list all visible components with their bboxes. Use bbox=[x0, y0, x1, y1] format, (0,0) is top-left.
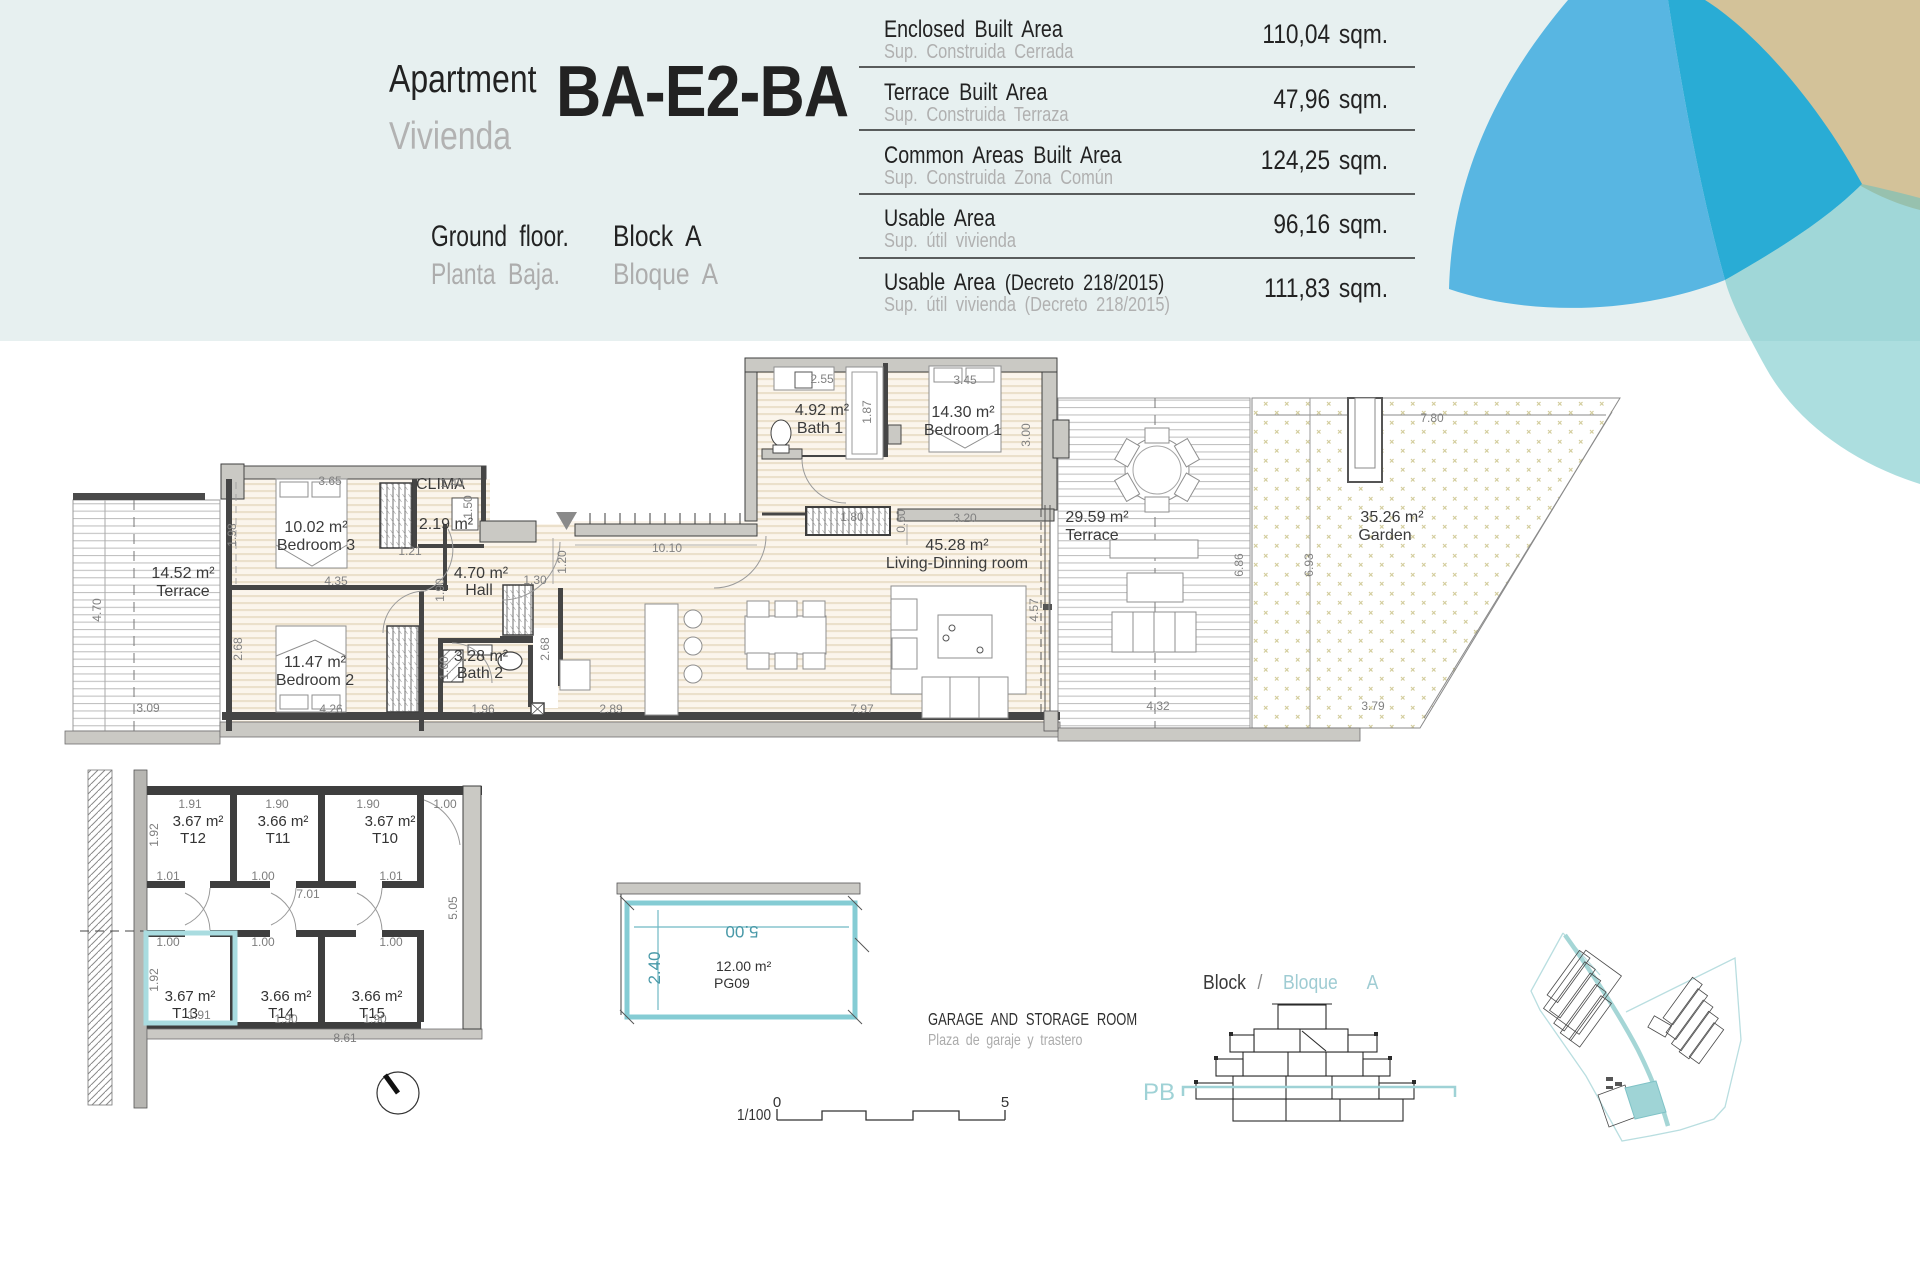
svg-text:PG09: PG09 bbox=[714, 975, 750, 991]
svg-text:1.00: 1.00 bbox=[433, 797, 457, 811]
svg-text:2.68: 2.68 bbox=[538, 637, 552, 661]
svg-text:T11: T11 bbox=[266, 830, 291, 847]
svg-text:5: 5 bbox=[1001, 1094, 1009, 1111]
svg-text:6.93: 6.93 bbox=[1302, 553, 1316, 577]
svg-text:Ground floor.: Ground floor. bbox=[431, 219, 569, 253]
svg-text:2.40: 2.40 bbox=[645, 951, 664, 984]
svg-text:3.66 m²: 3.66 m² bbox=[352, 988, 403, 1005]
svg-text:PB: PB bbox=[1143, 1079, 1175, 1106]
svg-text:T12: T12 bbox=[180, 830, 206, 847]
svg-text:Bedroom 1: Bedroom 1 bbox=[924, 422, 1002, 439]
svg-text:Garden: Garden bbox=[1358, 527, 1411, 544]
svg-text:Common Areas Built Area: Common Areas Built Area bbox=[884, 141, 1122, 168]
svg-text:1.92: 1.92 bbox=[147, 968, 161, 992]
svg-text:1.91: 1.91 bbox=[178, 797, 202, 811]
svg-text:14.30 m²: 14.30 m² bbox=[931, 404, 995, 421]
svg-text:1.91: 1.91 bbox=[187, 1008, 211, 1022]
svg-text:3.66 m²: 3.66 m² bbox=[261, 988, 312, 1005]
svg-text:47,96 sqm.: 47,96 sqm. bbox=[1273, 84, 1388, 114]
svg-text:1.90: 1.90 bbox=[363, 1012, 387, 1026]
svg-text:Terrace: Terrace bbox=[156, 583, 209, 600]
svg-text:1.00: 1.00 bbox=[156, 935, 180, 949]
svg-text:3.66 m²: 3.66 m² bbox=[258, 813, 309, 830]
svg-text:11.47 m²: 11.47 m² bbox=[284, 654, 347, 671]
svg-text:1.01: 1.01 bbox=[156, 869, 180, 883]
svg-text:3.65: 3.65 bbox=[318, 474, 342, 488]
svg-text:Planta Baja.: Planta Baja. bbox=[431, 257, 560, 291]
svg-text:Living-Dinning room: Living-Dinning room bbox=[886, 555, 1028, 572]
svg-text:3.67 m²: 3.67 m² bbox=[165, 988, 216, 1005]
svg-text:1.20: 1.20 bbox=[555, 550, 569, 574]
svg-text:Enclosed Built Area: Enclosed Built Area bbox=[884, 15, 1064, 42]
svg-text:Usable Area (Decreto 218/2015): Usable Area (Decreto 218/2015) bbox=[884, 268, 1164, 295]
svg-text:4.32: 4.32 bbox=[1146, 699, 1170, 713]
svg-text:Usable Area: Usable Area bbox=[884, 204, 996, 231]
svg-text:3.67 m²: 3.67 m² bbox=[173, 813, 224, 830]
svg-text:Sup. Construida Zona Común: Sup. Construida Zona Común bbox=[884, 165, 1113, 188]
svg-text:1.00: 1.00 bbox=[251, 869, 275, 883]
svg-text:Bedroom 2: Bedroom 2 bbox=[276, 672, 354, 689]
svg-text:1.30: 1.30 bbox=[523, 573, 547, 587]
svg-text:1.40: 1.40 bbox=[440, 476, 464, 490]
svg-text:BA-E2-BA: BA-E2-BA bbox=[556, 52, 848, 132]
svg-text:1/100: 1/100 bbox=[737, 1107, 771, 1124]
svg-text:29.59 m²: 29.59 m² bbox=[1065, 509, 1129, 526]
svg-text:2.55: 2.55 bbox=[810, 372, 834, 386]
svg-text:1.90: 1.90 bbox=[265, 797, 289, 811]
svg-text:Apartment: Apartment bbox=[389, 57, 537, 101]
svg-text:2.68: 2.68 bbox=[231, 637, 245, 661]
svg-text:7.80: 7.80 bbox=[1420, 411, 1444, 425]
svg-text:4.35: 4.35 bbox=[324, 574, 348, 588]
svg-text:8.61: 8.61 bbox=[333, 1031, 357, 1045]
svg-text:1.98: 1.98 bbox=[225, 523, 239, 547]
svg-text:Vivienda: Vivienda bbox=[389, 114, 511, 158]
svg-text:Bloque A: Bloque A bbox=[613, 257, 719, 291]
svg-text:3.79: 3.79 bbox=[1361, 699, 1385, 713]
svg-text:Terrace: Terrace bbox=[1065, 527, 1118, 544]
svg-text:4.26: 4.26 bbox=[319, 702, 343, 716]
svg-text:Hall: Hall bbox=[465, 582, 493, 599]
svg-text:1.01: 1.01 bbox=[379, 869, 403, 883]
svg-text:5.00: 5.00 bbox=[725, 922, 758, 941]
svg-text:110,04 sqm.: 110,04 sqm. bbox=[1262, 19, 1388, 49]
svg-text:1.80: 1.80 bbox=[840, 510, 864, 524]
svg-text:1.90: 1.90 bbox=[356, 797, 380, 811]
svg-text:1.92: 1.92 bbox=[147, 823, 161, 847]
svg-text:0.60: 0.60 bbox=[894, 509, 908, 533]
svg-text:Sup. Construida Terraza: Sup. Construida Terraza bbox=[884, 102, 1069, 125]
svg-text:124,25 sqm.: 124,25 sqm. bbox=[1261, 145, 1388, 175]
svg-text:4.92 m²: 4.92 m² bbox=[795, 402, 850, 419]
svg-text:4.70: 4.70 bbox=[90, 598, 104, 622]
svg-text:3.09: 3.09 bbox=[136, 701, 160, 715]
svg-text:3.00: 3.00 bbox=[1019, 423, 1033, 447]
svg-text:10.10: 10.10 bbox=[652, 541, 682, 555]
svg-text:2.89: 2.89 bbox=[599, 702, 623, 716]
svg-text:3.20: 3.20 bbox=[953, 511, 977, 525]
svg-text:111,83 sqm.: 111,83 sqm. bbox=[1264, 273, 1388, 303]
svg-text:Sup. útil vivienda: Sup. útil vivienda bbox=[884, 228, 1017, 251]
svg-text:Plaza de garaje y trastero: Plaza de garaje y trastero bbox=[928, 1032, 1083, 1050]
svg-text:Sup. Construida Cerrada: Sup. Construida Cerrada bbox=[884, 39, 1074, 62]
svg-text:Bath 2: Bath 2 bbox=[457, 665, 503, 682]
svg-text:45.28 m²: 45.28 m² bbox=[925, 537, 989, 554]
svg-text:12.00 m²: 12.00 m² bbox=[716, 958, 772, 974]
svg-text:1.00: 1.00 bbox=[251, 935, 275, 949]
svg-text:0: 0 bbox=[773, 1094, 781, 1111]
svg-text:1.90: 1.90 bbox=[433, 578, 447, 602]
svg-text:14.52 m²: 14.52 m² bbox=[151, 565, 215, 582]
svg-text:1.96: 1.96 bbox=[471, 702, 495, 716]
svg-text:Bath 1: Bath 1 bbox=[797, 420, 843, 437]
svg-text:Block / Bloque A: Block / Bloque A bbox=[1203, 971, 1379, 993]
svg-text:1.87: 1.87 bbox=[860, 400, 874, 424]
svg-text:GARAGE AND STORAGE ROOM: GARAGE AND STORAGE ROOM bbox=[928, 1010, 1137, 1030]
svg-text:3.45: 3.45 bbox=[953, 373, 977, 387]
svg-text:1.21: 1.21 bbox=[398, 544, 422, 558]
svg-text:4.57: 4.57 bbox=[1027, 598, 1041, 622]
svg-text:Sup. útil vivienda (Decreto 21: Sup. útil vivienda (Decreto 218/2015) bbox=[884, 292, 1170, 315]
svg-text:10.02 m²: 10.02 m² bbox=[284, 519, 348, 536]
svg-text:6.86: 6.86 bbox=[1232, 553, 1246, 577]
svg-text:1.90: 1.90 bbox=[274, 1012, 298, 1026]
svg-text:4.70 m²: 4.70 m² bbox=[454, 565, 509, 582]
svg-text:96,16 sqm.: 96,16 sqm. bbox=[1273, 209, 1388, 239]
svg-text:Bedroom 3: Bedroom 3 bbox=[277, 537, 355, 554]
svg-text:3.28 m²: 3.28 m² bbox=[454, 648, 509, 665]
svg-text:T10: T10 bbox=[372, 830, 398, 847]
svg-text:Block A: Block A bbox=[613, 219, 702, 253]
svg-text:1.00: 1.00 bbox=[379, 935, 403, 949]
svg-text:35.26 m²: 35.26 m² bbox=[1360, 509, 1424, 526]
svg-text:3.67 m²: 3.67 m² bbox=[365, 813, 416, 830]
svg-text:7.01: 7.01 bbox=[296, 887, 320, 901]
svg-text:Terrace Built Area: Terrace Built Area bbox=[884, 78, 1048, 105]
svg-text:7.97: 7.97 bbox=[850, 702, 874, 716]
svg-text:1.50: 1.50 bbox=[461, 495, 475, 519]
svg-text:5.05: 5.05 bbox=[446, 896, 460, 920]
svg-text:1.60: 1.60 bbox=[437, 656, 451, 680]
